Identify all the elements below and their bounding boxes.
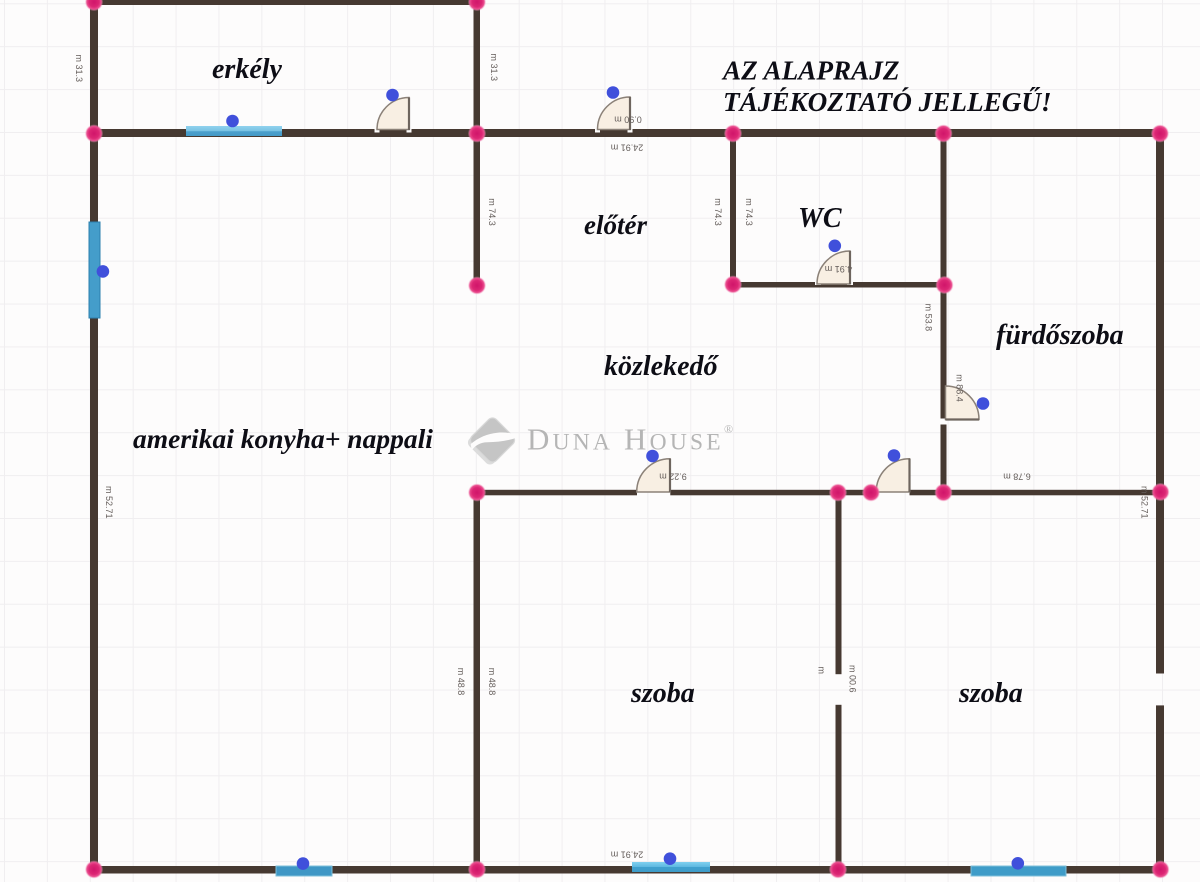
svg-text:közlekedő: közlekedő <box>604 351 720 382</box>
svg-text:előtér: előtér <box>584 210 647 240</box>
svg-text:m 74.3: m 74.3 <box>487 198 497 226</box>
svg-text:WC: WC <box>798 203 842 234</box>
svg-text:®: ® <box>724 422 733 436</box>
svg-text:amerikai konyha+ nappali: amerikai konyha+ nappali <box>133 423 433 454</box>
svg-text:24.91 m: 24.91 m <box>611 143 644 153</box>
svg-text:0.90 m: 0.90 m <box>614 115 642 125</box>
svg-text:m 53.8: m 53.8 <box>924 304 934 332</box>
svg-text:fürdőszoba: fürdőszoba <box>996 320 1124 351</box>
svg-text:AZ ALAPRAJZ: AZ ALAPRAJZ <box>721 56 899 86</box>
svg-text:24.91 m: 24.91 m <box>611 850 644 860</box>
svg-text:m 48.8: m 48.8 <box>456 668 466 696</box>
svg-text:szoba: szoba <box>630 678 695 709</box>
svg-text:m 00.6: m 00.6 <box>847 665 857 693</box>
svg-text:TÁJÉKOZTATÓ JELLEGŰ!: TÁJÉKOZTATÓ JELLEGŰ! <box>723 86 1052 117</box>
svg-text:6.78 m: 6.78 m <box>1003 471 1031 481</box>
svg-text:m 31.3: m 31.3 <box>74 55 84 83</box>
svg-text:m 31.3: m 31.3 <box>489 54 499 82</box>
svg-text:m 88.4: m 88.4 <box>955 374 965 402</box>
svg-text:m 48.8: m 48.8 <box>487 668 497 696</box>
svg-text:m 74.3: m 74.3 <box>744 198 754 226</box>
svg-text:m: m <box>817 666 827 674</box>
svg-text:m 52.71: m 52.71 <box>1140 486 1150 519</box>
svg-text:9.22 m: 9.22 m <box>659 471 687 481</box>
svg-text:m 74.3: m 74.3 <box>713 198 723 226</box>
svg-text:DUNA HOUSE: DUNA HOUSE <box>527 422 724 457</box>
svg-text:erkély: erkély <box>212 54 283 85</box>
svg-text:m 52.71: m 52.71 <box>104 486 114 519</box>
svg-text:4.91 m: 4.91 m <box>825 264 853 274</box>
svg-text:szoba: szoba <box>958 678 1023 709</box>
